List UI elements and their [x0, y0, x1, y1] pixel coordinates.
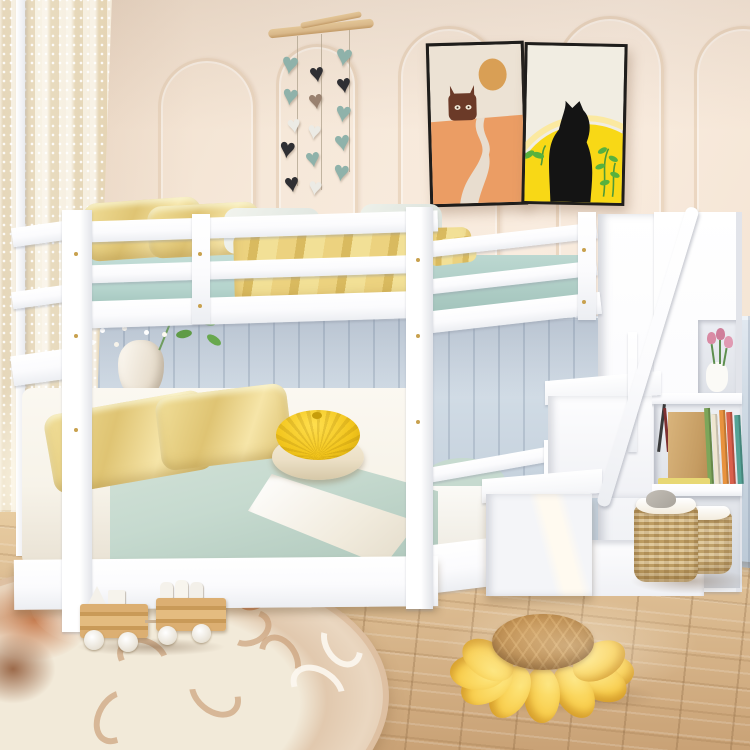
train-wheel — [118, 632, 138, 652]
bookcase-shelf-board — [650, 393, 742, 404]
book-row — [706, 406, 742, 484]
step-1-riser — [486, 494, 592, 596]
cat-desert-art — [429, 44, 525, 205]
tulip-flower — [724, 336, 733, 348]
train-wheel — [84, 630, 104, 650]
fabric-heart-teal: ♥ — [280, 81, 300, 111]
front-left-post — [62, 210, 92, 632]
cat-sun-art — [524, 45, 624, 203]
fabric-heart-teal: ♥ — [332, 127, 352, 157]
framed-cat-art-right — [521, 42, 627, 206]
pouf-knot — [312, 412, 322, 419]
screw-dots — [74, 252, 78, 256]
fabric-heart-teal: ♥ — [333, 98, 353, 128]
train-wheel — [158, 626, 177, 645]
bedroom-product-photo: ♥♥♥♥♥♥♥♥♥♥♥♥♥♥♥ — [0, 0, 750, 750]
tulip-stem — [719, 340, 721, 364]
grey-pouch — [646, 490, 676, 508]
toy-block-cube — [108, 590, 125, 605]
train-wheel — [192, 624, 211, 643]
fabric-heart-teal: ♥ — [331, 157, 351, 187]
fabric-heart-black: ♥ — [277, 134, 297, 164]
front-right-post — [406, 207, 433, 609]
storage-box — [668, 412, 710, 482]
framed-cat-art-left — [426, 41, 529, 208]
center-guard-post — [192, 214, 210, 324]
toy-block-triangle — [88, 586, 106, 604]
tulip-vase — [706, 362, 728, 392]
sunlight-patch — [440, 596, 700, 696]
stair-side-post — [578, 212, 596, 320]
wicker-basket-left — [634, 506, 698, 582]
tulip-flower — [707, 332, 716, 344]
